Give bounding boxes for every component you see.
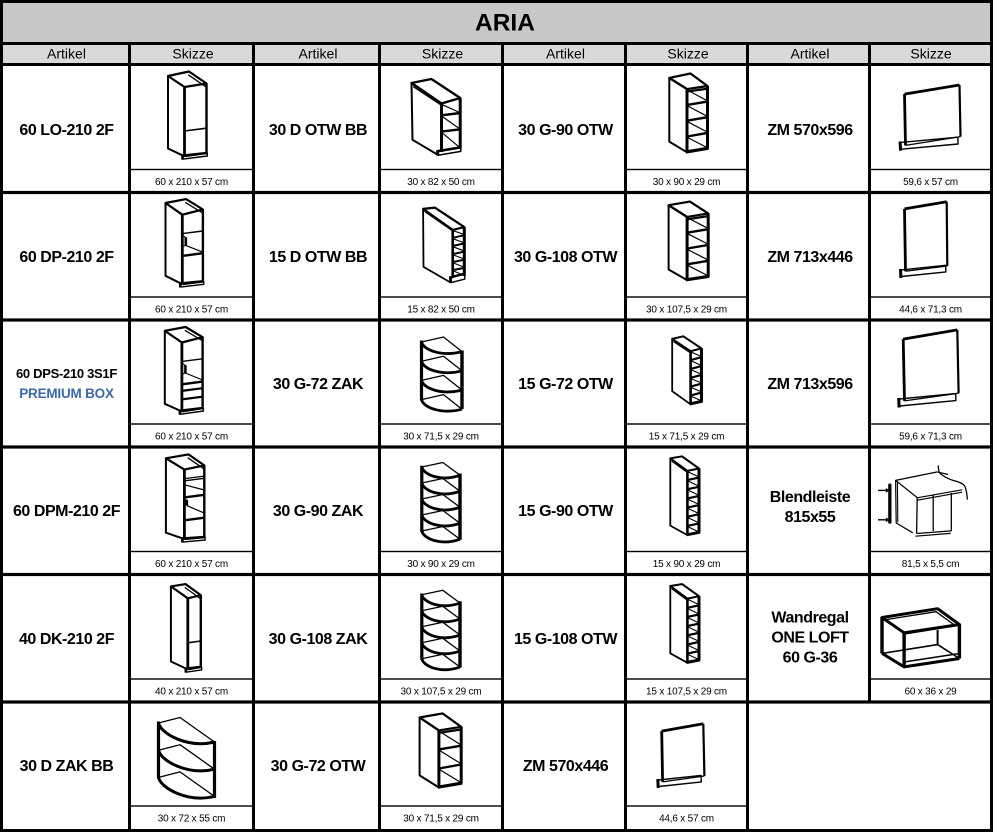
svg-text:Artikel: Artikel	[546, 46, 585, 62]
svg-text:44,6 x 71,3 cm: 44,6 x 71,3 cm	[899, 305, 962, 316]
svg-text:44,6 x 57 cm: 44,6 x 57 cm	[659, 814, 714, 825]
svg-text:Wandregal: Wandregal	[771, 610, 848, 627]
svg-text:60 LO-210 2F: 60 LO-210 2F	[19, 122, 114, 139]
svg-text:60 DPS-210 3S1F: 60 DPS-210 3S1F	[16, 366, 117, 381]
svg-text:15 G-72 OTW: 15 G-72 OTW	[518, 376, 614, 393]
svg-text:30 G-72 OTW: 30 G-72 OTW	[271, 758, 367, 775]
svg-text:15 x 107,5 x 29 cm: 15 x 107,5 x 29 cm	[646, 687, 727, 698]
svg-text:30 x 107,5 x 29 cm: 30 x 107,5 x 29 cm	[646, 305, 727, 316]
svg-text:ONE LOFT: ONE LOFT	[771, 630, 849, 647]
svg-text:30 x 71,5 x 29 cm: 30 x 71,5 x 29 cm	[403, 814, 479, 825]
svg-text:60 DPM-210 2F: 60 DPM-210 2F	[13, 503, 121, 520]
svg-text:Artikel: Artikel	[791, 46, 830, 62]
svg-text:60 DP-210 2F: 60 DP-210 2F	[19, 249, 114, 266]
svg-text:30 G-108 OTW: 30 G-108 OTW	[514, 249, 618, 266]
svg-text:60 x 210 x 57 cm: 60 x 210 x 57 cm	[155, 559, 228, 570]
svg-text:60 x 210 x 57 cm: 60 x 210 x 57 cm	[155, 432, 228, 443]
svg-text:40 x 210 x 57 cm: 40 x 210 x 57 cm	[155, 687, 228, 698]
svg-text:60 x 36 x 29: 60 x 36 x 29	[904, 687, 957, 698]
svg-text:30 G-108 ZAK: 30 G-108 ZAK	[269, 631, 369, 648]
svg-text:30 x 107,5 x 29 cm: 30 x 107,5 x 29 cm	[401, 687, 482, 698]
svg-text:15 x 71,5 x 29 cm: 15 x 71,5 x 29 cm	[649, 432, 725, 443]
svg-text:15 x 90 x 29 cm: 15 x 90 x 29 cm	[653, 559, 721, 570]
svg-text:30 x 71,5 x 29 cm: 30 x 71,5 x 29 cm	[403, 432, 479, 443]
svg-text:30 x 82 x 50 cm: 30 x 82 x 50 cm	[407, 177, 475, 188]
svg-text:59,6 x 57 cm: 59,6 x 57 cm	[903, 177, 958, 188]
svg-text:59,6 x 71,3 cm: 59,6 x 71,3 cm	[899, 432, 962, 443]
svg-text:Skizze: Skizze	[172, 46, 213, 62]
svg-text:15 x 82 x 50 cm: 15 x 82 x 50 cm	[407, 305, 475, 316]
svg-text:Blendleiste: Blendleiste	[770, 489, 851, 506]
svg-text:30 G-72 ZAK: 30 G-72 ZAK	[273, 376, 364, 393]
svg-text:Skizze: Skizze	[667, 46, 708, 62]
svg-text:PREMIUM BOX: PREMIUM BOX	[19, 386, 114, 401]
svg-text:ARIA: ARIA	[475, 10, 535, 37]
svg-text:Artikel: Artikel	[299, 46, 338, 62]
svg-text:30 D OTW BB: 30 D OTW BB	[269, 122, 367, 139]
svg-text:30 D ZAK BB: 30 D ZAK BB	[20, 758, 114, 775]
svg-text:ZM 713x446: ZM 713x446	[767, 249, 853, 266]
svg-text:81,5 x 5,5 cm: 81,5 x 5,5 cm	[902, 559, 959, 570]
svg-text:30 x 90 x 29 cm: 30 x 90 x 29 cm	[407, 559, 475, 570]
svg-text:ZM 570x446: ZM 570x446	[523, 758, 609, 775]
svg-text:30 G-90 OTW: 30 G-90 OTW	[518, 122, 614, 139]
svg-text:ZM 713x596: ZM 713x596	[767, 376, 853, 393]
svg-text:Artikel: Artikel	[47, 46, 86, 62]
svg-text:15 D OTW BB: 15 D OTW BB	[269, 249, 367, 266]
svg-text:15 G-90 OTW: 15 G-90 OTW	[518, 503, 614, 520]
svg-text:60 x 210 x 57 cm: 60 x 210 x 57 cm	[155, 305, 228, 316]
svg-text:60 G-36: 60 G-36	[783, 650, 838, 667]
svg-text:40 DK-210 2F: 40 DK-210 2F	[19, 631, 115, 648]
svg-text:30 G-90 ZAK: 30 G-90 ZAK	[273, 503, 364, 520]
svg-text:Skizze: Skizze	[422, 46, 463, 62]
svg-text:815x55: 815x55	[785, 509, 836, 526]
svg-text:15 G-108 OTW: 15 G-108 OTW	[514, 631, 618, 648]
svg-text:30 x 90 x 29 cm: 30 x 90 x 29 cm	[653, 177, 721, 188]
svg-text:Skizze: Skizze	[910, 46, 951, 62]
svg-text:30 x 72 x 55 cm: 30 x 72 x 55 cm	[158, 814, 226, 825]
svg-text:60 x 210 x 57 cm: 60 x 210 x 57 cm	[155, 177, 228, 188]
svg-text:ZM 570x596: ZM 570x596	[767, 122, 853, 139]
